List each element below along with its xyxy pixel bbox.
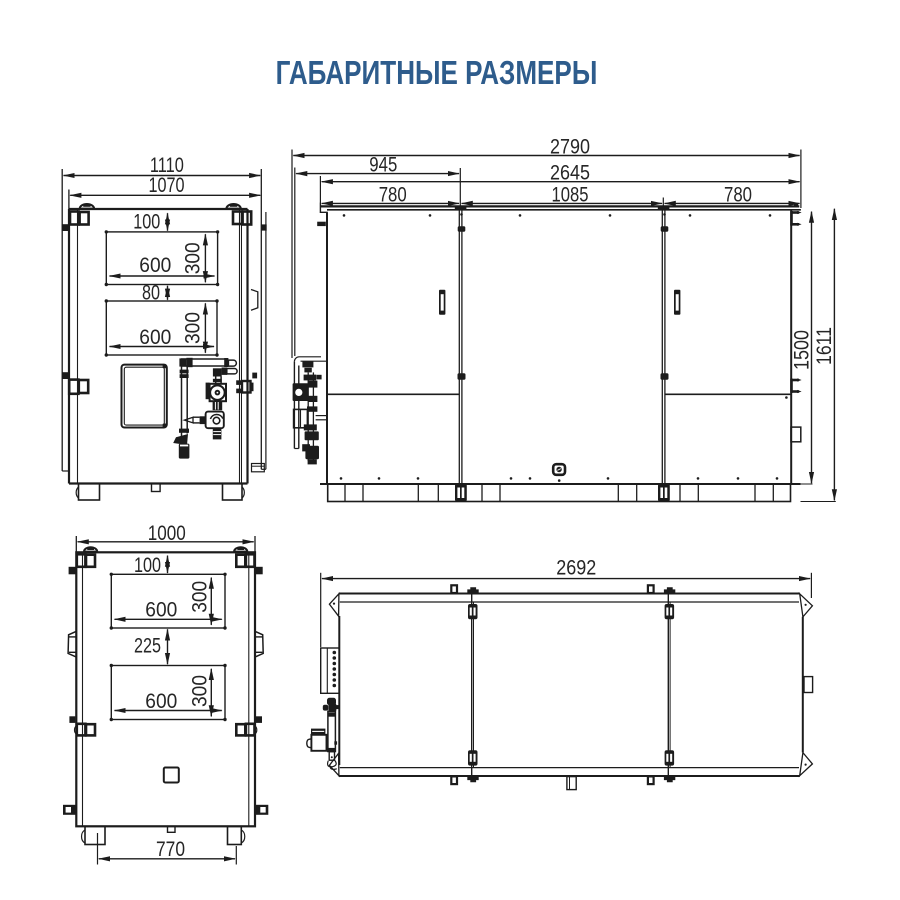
svg-text:ГАБАРИТНЫЕ РАЗМЕРЫ: ГАБАРИТНЫЕ РАЗМЕРЫ (276, 55, 598, 92)
svg-text:2790: 2790 (550, 135, 590, 158)
svg-text:600: 600 (145, 599, 177, 622)
svg-text:1611: 1611 (813, 327, 836, 365)
svg-text:600: 600 (139, 326, 171, 349)
svg-text:100: 100 (133, 210, 160, 233)
svg-text:300: 300 (182, 242, 205, 274)
svg-text:1500: 1500 (791, 330, 814, 370)
svg-text:300: 300 (182, 312, 205, 344)
svg-text:100: 100 (134, 554, 161, 577)
svg-text:1085: 1085 (552, 183, 589, 206)
svg-text:300: 300 (188, 581, 211, 613)
svg-text:2645: 2645 (550, 162, 590, 185)
svg-text:225: 225 (134, 634, 161, 657)
svg-text:600: 600 (145, 690, 177, 713)
svg-text:300: 300 (188, 675, 211, 707)
svg-text:780: 780 (379, 183, 407, 206)
svg-text:2692: 2692 (556, 557, 596, 580)
svg-text:780: 780 (724, 183, 752, 206)
svg-text:770: 770 (156, 838, 185, 861)
svg-text:1070: 1070 (149, 174, 185, 197)
svg-text:600: 600 (139, 254, 171, 277)
svg-text:945: 945 (369, 153, 397, 176)
svg-text:1000: 1000 (148, 522, 186, 545)
